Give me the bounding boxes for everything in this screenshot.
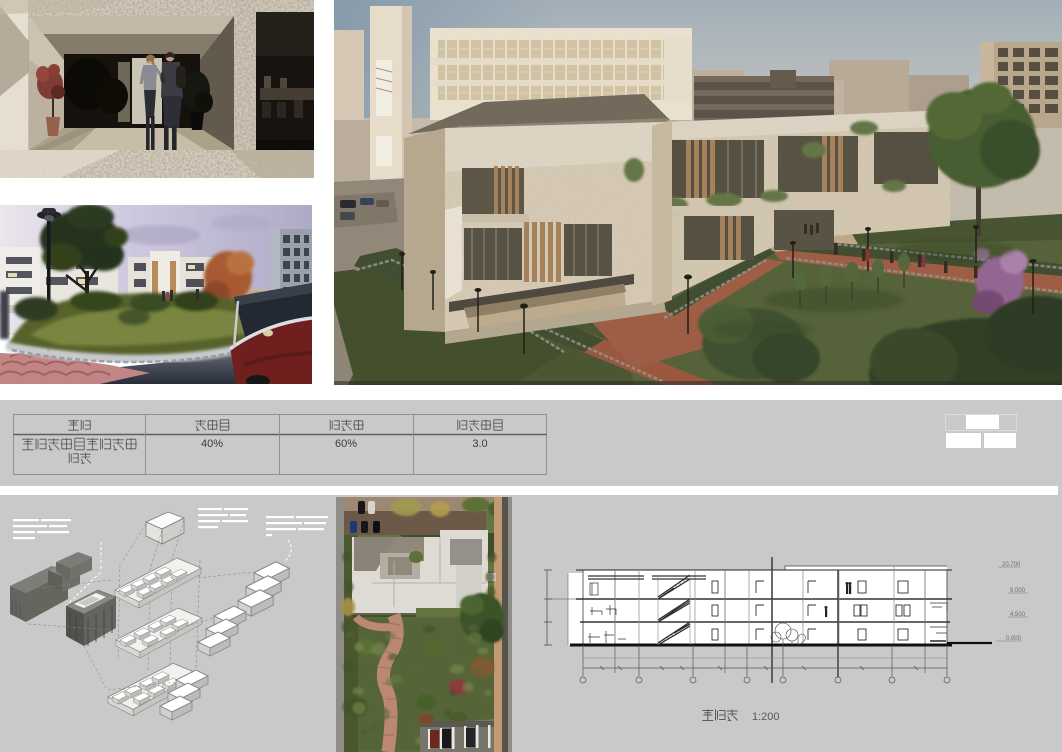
svg-text:3.0: 3.0 — [472, 438, 487, 450]
svg-text:40%: 40% — [201, 438, 223, 450]
svg-text:1:200: 1:200 — [752, 711, 780, 723]
svg-text:60%: 60% — [335, 438, 357, 450]
